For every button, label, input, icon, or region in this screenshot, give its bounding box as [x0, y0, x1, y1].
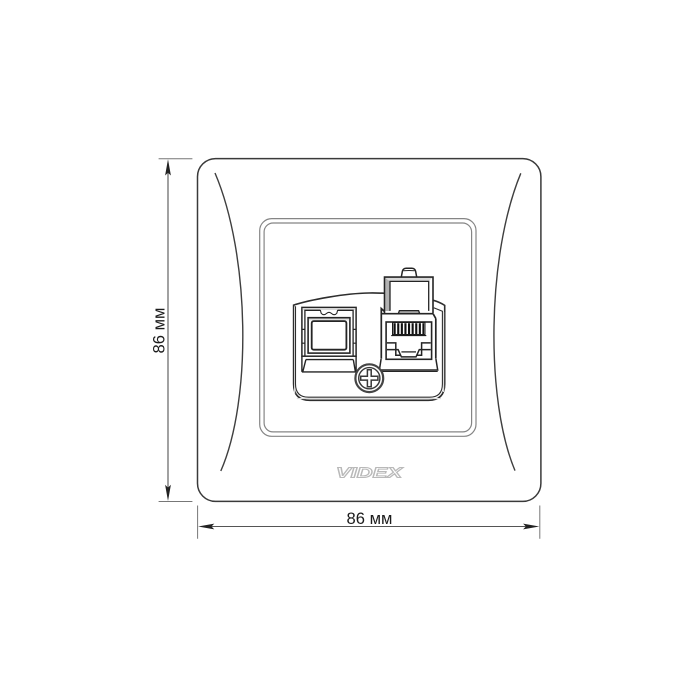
svg-text:86 мм: 86 мм	[347, 509, 393, 528]
svg-text:86 мм: 86 мм	[149, 308, 168, 354]
svg-text:VIDEX: VIDEX	[336, 464, 403, 481]
